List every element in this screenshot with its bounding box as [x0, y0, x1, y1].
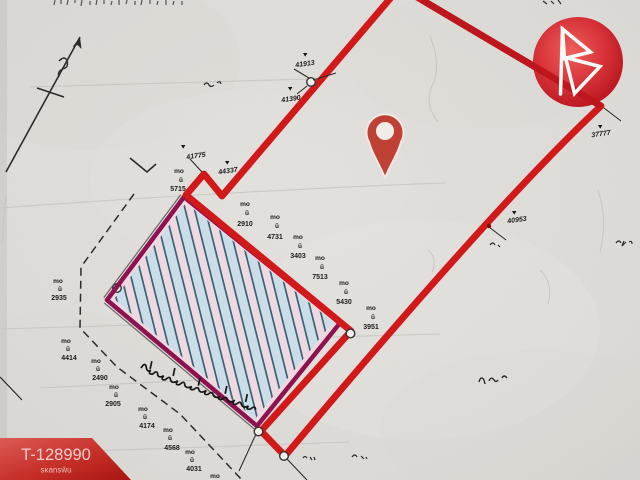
svg-text:mo: mo [109, 384, 119, 391]
svg-text:mo: mo [315, 255, 325, 262]
svg-text:mo: mo [185, 449, 195, 456]
svg-text:ũ: ũ [96, 366, 100, 373]
svg-text:mo: mo [210, 473, 220, 480]
svg-text:mo: mo [91, 358, 101, 365]
svg-text:ũ: ũ [245, 210, 249, 217]
svg-text:2935: 2935 [51, 295, 67, 302]
svg-text:mo: mo [339, 280, 349, 287]
svg-text:ũ: ũ [320, 264, 324, 271]
svg-text:mo: mo [174, 168, 184, 175]
svg-text:mo: mo [163, 427, 173, 434]
svg-text:2490: 2490 [92, 375, 108, 382]
svg-text:ũ: ũ [344, 289, 348, 296]
svg-text:mo: mo [138, 406, 148, 413]
svg-text:ũ: ũ [298, 243, 302, 250]
svg-text:mo: mo [53, 278, 63, 285]
svg-text:7513: 7513 [312, 274, 328, 281]
svg-text:4731: 4731 [267, 234, 283, 241]
svg-text:mo: mo [366, 305, 376, 312]
svg-text:ũ: ũ [143, 414, 147, 421]
svg-text:ũ: ũ [275, 223, 279, 230]
svg-text:mo: mo [240, 201, 250, 208]
svg-text:ũ: ũ [114, 392, 118, 399]
svg-text:ũ: ũ [168, 435, 172, 442]
svg-text:ũ: ũ [190, 457, 194, 464]
svg-text:4414: 4414 [61, 355, 77, 362]
svg-text:ũ: ũ [66, 346, 70, 353]
svg-text:4568: 4568 [164, 445, 180, 452]
svg-text:mo: mo [270, 214, 280, 221]
svg-text:ũ: ũ [58, 286, 62, 293]
svg-text:4174: 4174 [139, 423, 155, 430]
svg-text:3951: 3951 [363, 324, 379, 331]
svg-text:T-128990: T-128990 [21, 446, 91, 464]
svg-text:mo: mo [293, 234, 303, 241]
svg-text:5715: 5715 [170, 186, 186, 193]
svg-text:3403: 3403 [290, 253, 306, 260]
svg-text:2905: 2905 [105, 401, 121, 408]
svg-text:sĸansŵu: sĸansŵu [40, 466, 71, 475]
svg-text:5430: 5430 [336, 299, 352, 306]
svg-text:ũ: ũ [371, 314, 375, 321]
svg-text:mo: mo [61, 338, 71, 345]
svg-text:ũ: ũ [179, 177, 183, 184]
svg-text:4031: 4031 [186, 466, 202, 473]
svg-text:2910: 2910 [237, 221, 253, 228]
